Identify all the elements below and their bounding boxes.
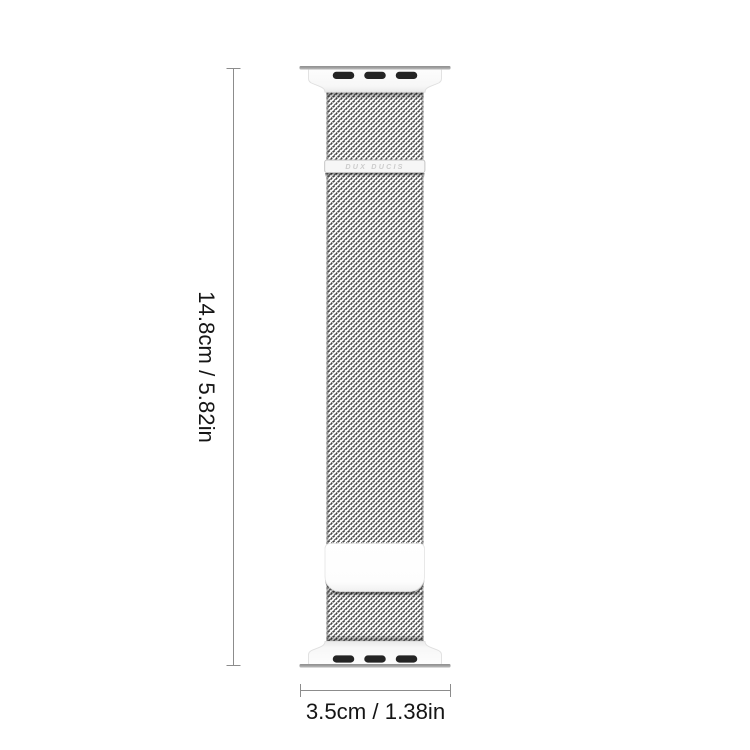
svg-text:14.8cm / 5.82in: 14.8cm / 5.82in <box>194 291 219 443</box>
svg-text:3.5cm / 1.38in: 3.5cm / 1.38in <box>306 699 445 724</box>
svg-text:DUX DUCIS: DUX DUCIS <box>345 162 404 171</box>
